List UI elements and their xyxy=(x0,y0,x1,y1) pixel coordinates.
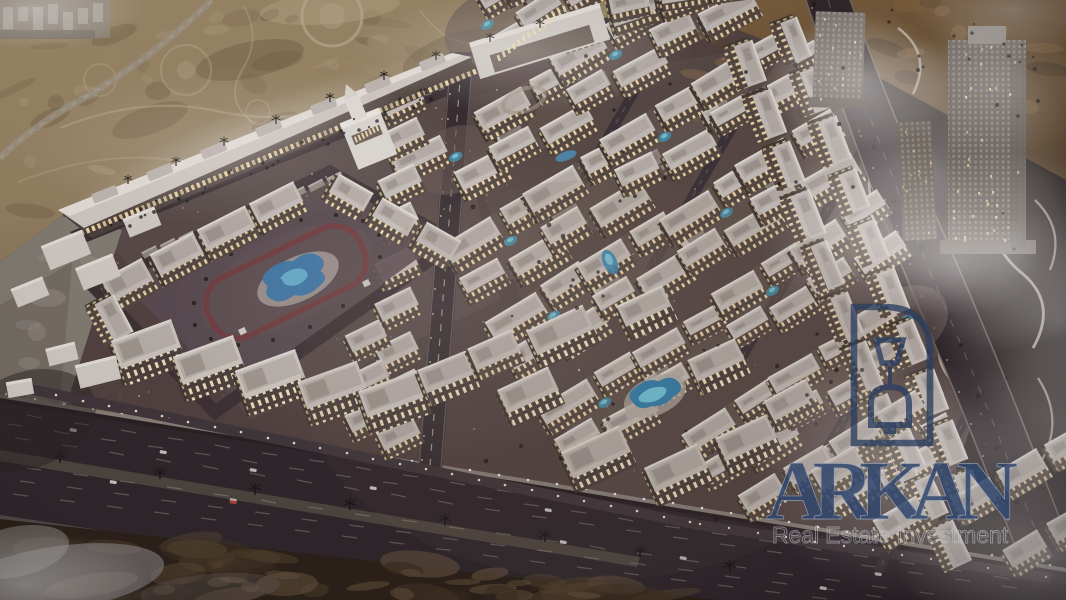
svg-text:Real Estate Investment: Real Estate Investment xyxy=(772,522,1009,548)
